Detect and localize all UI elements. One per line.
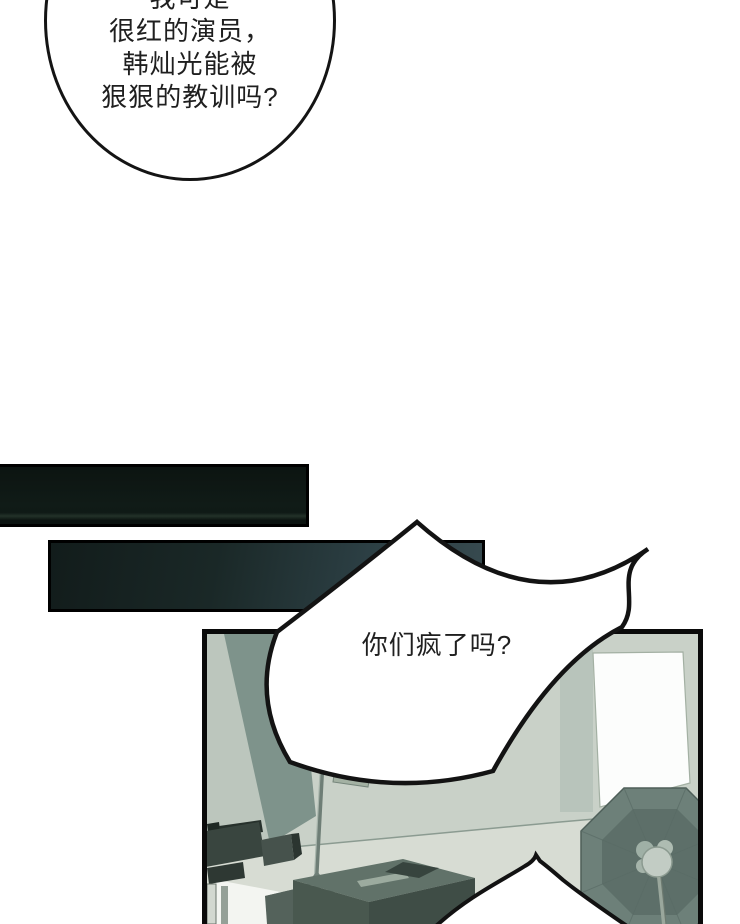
shout-bubble [0,0,740,924]
shout-bubble-text: 你们疯了吗? [327,630,547,660]
comic-page: 我可是 很红的演员， 韩灿光能被 狠狠的教训吗? [0,0,740,924]
